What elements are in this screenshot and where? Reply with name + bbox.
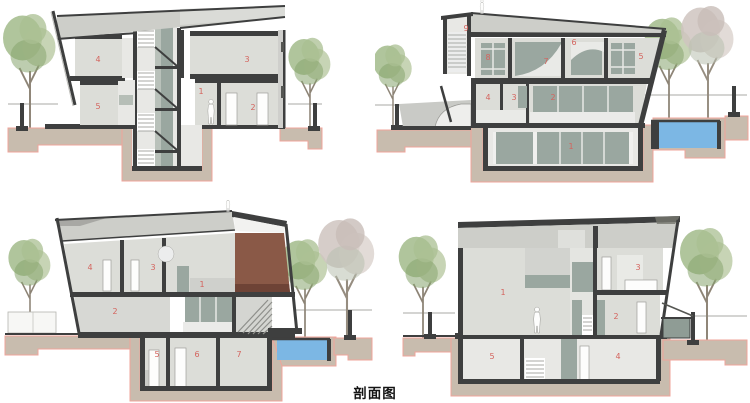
room-label: 2: [550, 94, 555, 102]
building-section: [45, 6, 286, 171]
room-label: 5: [489, 353, 494, 361]
swimming-pool: [651, 121, 721, 149]
room-label: 2: [112, 308, 117, 316]
room-label: 1: [199, 281, 204, 289]
planter: [8, 312, 56, 333]
swimming-pool: [272, 339, 331, 361]
room-label: 4: [615, 353, 620, 361]
room-label: 5: [95, 103, 100, 111]
room-label: 1: [198, 88, 203, 96]
section-drawing-sheet: 4 3 5 1 2: [0, 0, 750, 403]
section-top-left: 4 3 5 1 2: [0, 0, 375, 200]
room-label: 7: [236, 351, 241, 359]
room-label: 8: [485, 54, 490, 62]
section-bottom-left: 4 3 1 2 5 6 7: [0, 200, 375, 403]
section-bottom-right: 1 3 2 5 4: [375, 200, 750, 403]
room-label: 3: [635, 264, 640, 272]
driveway-ramp: [399, 86, 471, 130]
room-label: 2: [613, 313, 618, 321]
section-top-right: 9 8 7 6 5 4 3 2 1: [375, 0, 750, 200]
room-label: 3: [244, 56, 249, 64]
room-label: 2: [250, 104, 255, 112]
sheet-caption: 剖面图: [0, 382, 750, 402]
person-icon: [480, 0, 484, 14]
room-label: 4: [87, 264, 92, 272]
room-label: 1: [568, 143, 573, 151]
room-label: 4: [485, 94, 490, 102]
room-label: 7: [543, 58, 548, 66]
staircase: [236, 296, 272, 334]
person-icon: [226, 200, 230, 212]
room-label: 3: [511, 94, 516, 102]
room-label: 6: [194, 351, 199, 359]
room-label: 5: [638, 53, 643, 61]
room-label: 5: [154, 351, 159, 359]
building-section: [403, 216, 693, 384]
room-label: 9: [463, 25, 468, 33]
building-section: [5, 200, 302, 391]
room-label: 4: [95, 56, 100, 64]
room-label: 6: [571, 39, 576, 47]
room-label: 1: [500, 289, 505, 297]
room-label: 3: [150, 264, 155, 272]
